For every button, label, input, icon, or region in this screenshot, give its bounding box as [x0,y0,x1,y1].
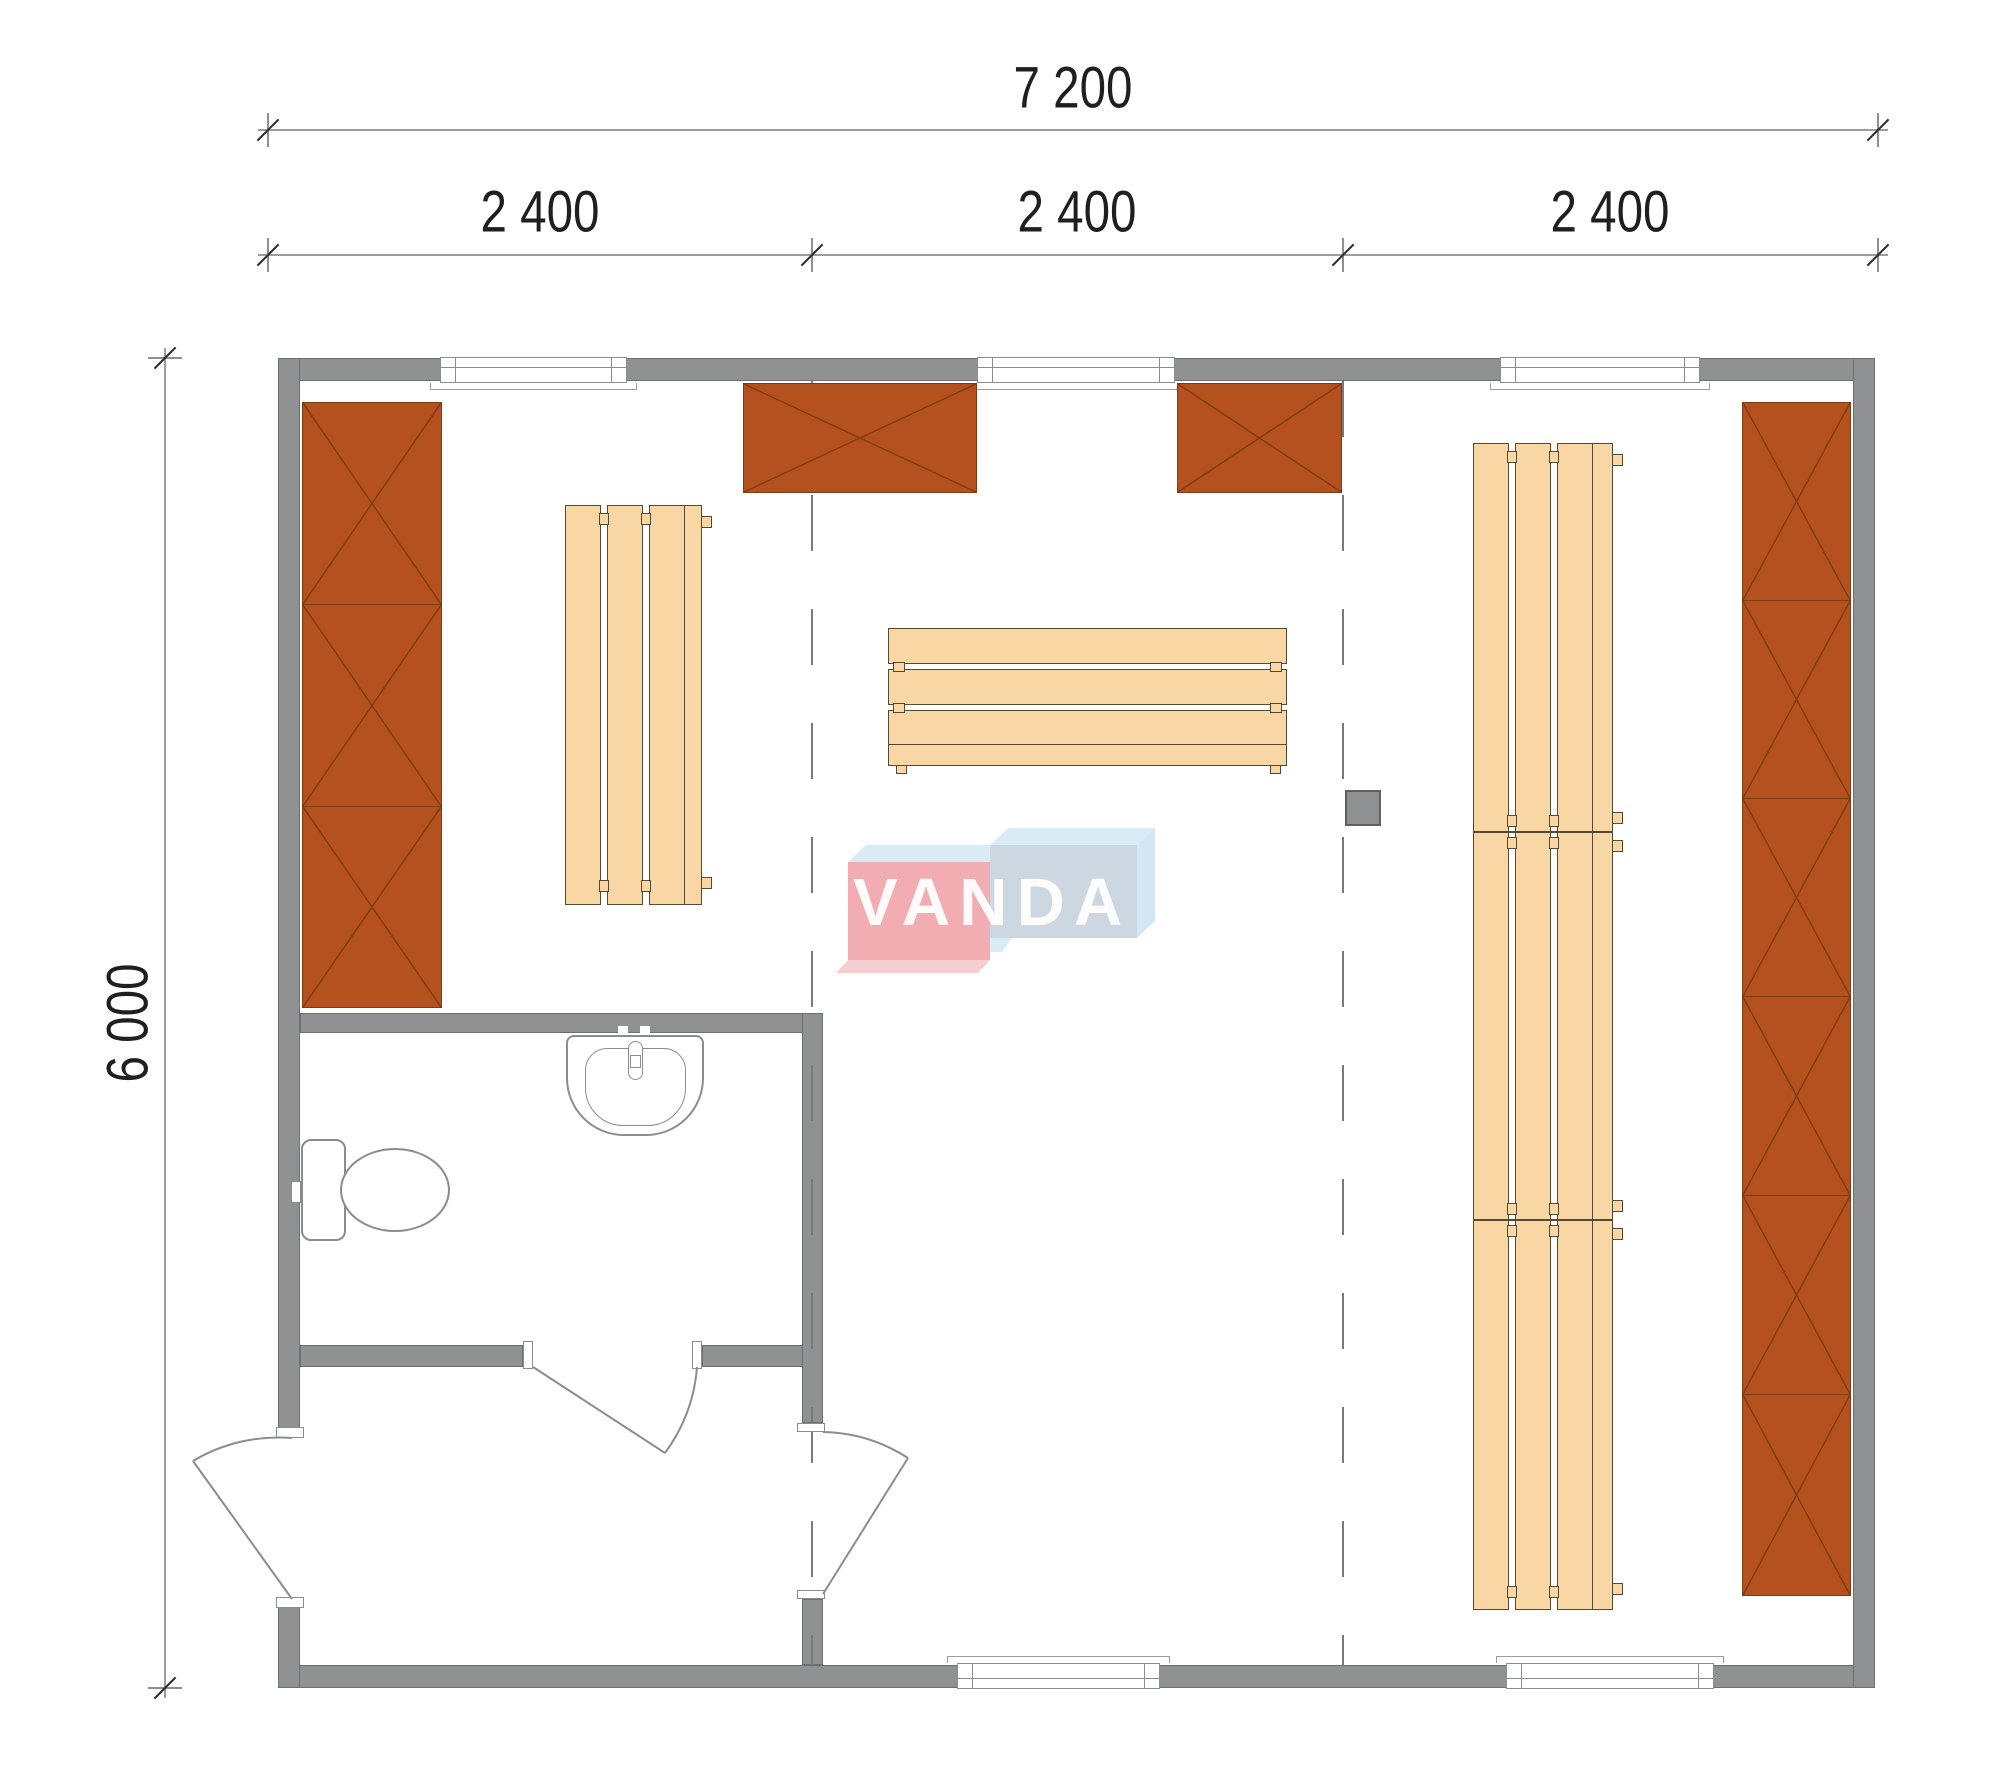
door-jamb [692,1341,702,1369]
toilet-flush-button [291,1181,301,1203]
bench-tab [893,703,905,713]
wood-panel-section [1742,1195,1851,1395]
sink-faucet-base [630,1055,641,1068]
bench-slat [888,628,1287,664]
floor-plan-scene: 7 200 2 400 2 400 2 400 6 000 [0,0,2000,1786]
bench-slat [607,505,643,905]
wood-panel-section [1742,798,1851,997]
wall-bathroom-top [300,1013,823,1033]
dimension-line-total-width [258,129,1888,131]
bench-joint-line [1473,831,1613,833]
window-sill [1490,383,1710,390]
dimension-label-module-1: 2 400 [480,179,599,246]
bench-tab [1612,1200,1623,1212]
dimension-label-module-3: 2 400 [1550,179,1669,246]
bench-tab [1507,451,1517,463]
bench-tab [641,880,651,892]
logo-right-side-face [1137,828,1155,938]
dimension-label-height: 6 000 [95,963,162,1082]
bench-tab [1549,837,1559,849]
bench-slat [1557,443,1593,1610]
bench-tab [1549,815,1559,827]
wood-panel-section [302,806,442,1008]
mainroom-door-arc [823,1432,908,1458]
bench-tab [641,513,651,525]
window [440,357,627,383]
bathroom-door-leaf [533,1367,665,1453]
dimension-line-height [164,348,166,1698]
sink-wall-mount [640,1026,650,1035]
logo-right-top-face [990,828,1155,845]
door-jamb [797,1423,825,1432]
bench-slat [649,505,685,905]
bench-tab [599,513,609,525]
bench-tab [599,880,609,892]
wood-panel-section [302,604,442,807]
bench-tab [1612,454,1623,466]
bench-slat [888,669,1287,705]
wood-panel-section [1742,1394,1851,1596]
bench-tab [1549,1586,1559,1598]
logo-left-tail [836,960,990,973]
bench-foot [1270,765,1281,774]
bench-tab [1612,812,1623,824]
dimension-label-module-2: 2 400 [1017,179,1136,246]
bench-edge-board [888,744,1287,766]
bench-tab [1549,1203,1559,1215]
window-sill [1496,1656,1724,1663]
bench-slat [888,710,1287,745]
stove [1345,790,1381,826]
window [1500,357,1700,383]
bench-edge-board [684,505,702,905]
bench-tab [1612,840,1623,852]
bench-tab [1507,815,1517,827]
door-jamb [276,1427,304,1438]
bench-tab [1270,703,1282,713]
window [977,357,1175,383]
wall-right [1853,358,1875,1688]
bench-tab [1507,1586,1517,1598]
wood-panel-section [1742,996,1851,1196]
dimension-line-modules [258,254,1888,256]
ceiling-cabinet [1177,383,1342,493]
wall-bathroom-bottom-left [300,1345,523,1367]
wood-panel-section [1742,600,1851,799]
bench-slat [1515,443,1551,1610]
mainroom-door-leaf [823,1458,908,1594]
door-jamb [276,1597,304,1608]
bench-joint-line [1473,1219,1613,1221]
window-sill [947,1656,1170,1663]
bench-tab [1612,1228,1623,1240]
wood-panel-section [302,402,442,605]
toilet-bowl [340,1148,450,1232]
module-grid-line-1 [811,381,813,1665]
module-grid-line-2 [1342,381,1344,1665]
bench-foot [896,765,907,774]
window [1506,1663,1714,1689]
dimension-label-total-width: 7 200 [1013,55,1132,122]
bench-tab [893,662,905,672]
bench-slat [565,505,601,905]
bench-tab [1270,662,1282,672]
door-jamb [797,1590,825,1599]
ceiling-cabinet [743,383,977,493]
bench-tab [701,516,712,528]
logo-left-top-face [848,845,1008,862]
bench-edge-board [1592,443,1613,1610]
bench-slat [1473,443,1509,1610]
window-sill [430,383,637,390]
sink-wall-mount [618,1026,628,1035]
bench-tab [1507,1225,1517,1237]
bench-tab [1549,1225,1559,1237]
bench-tab [1612,1583,1623,1595]
vanda-logo-text: VANDA [853,864,1131,941]
window-sill [967,383,1185,390]
window [957,1663,1160,1689]
bench-tab [701,877,712,889]
bench-tab [1549,451,1559,463]
door-opening [276,1438,302,1597]
bench-tab [1507,837,1517,849]
door-jamb [523,1341,533,1369]
wood-panel-section [1742,402,1851,601]
bathroom-door-arc [665,1367,697,1453]
bench-tab [1507,1203,1517,1215]
